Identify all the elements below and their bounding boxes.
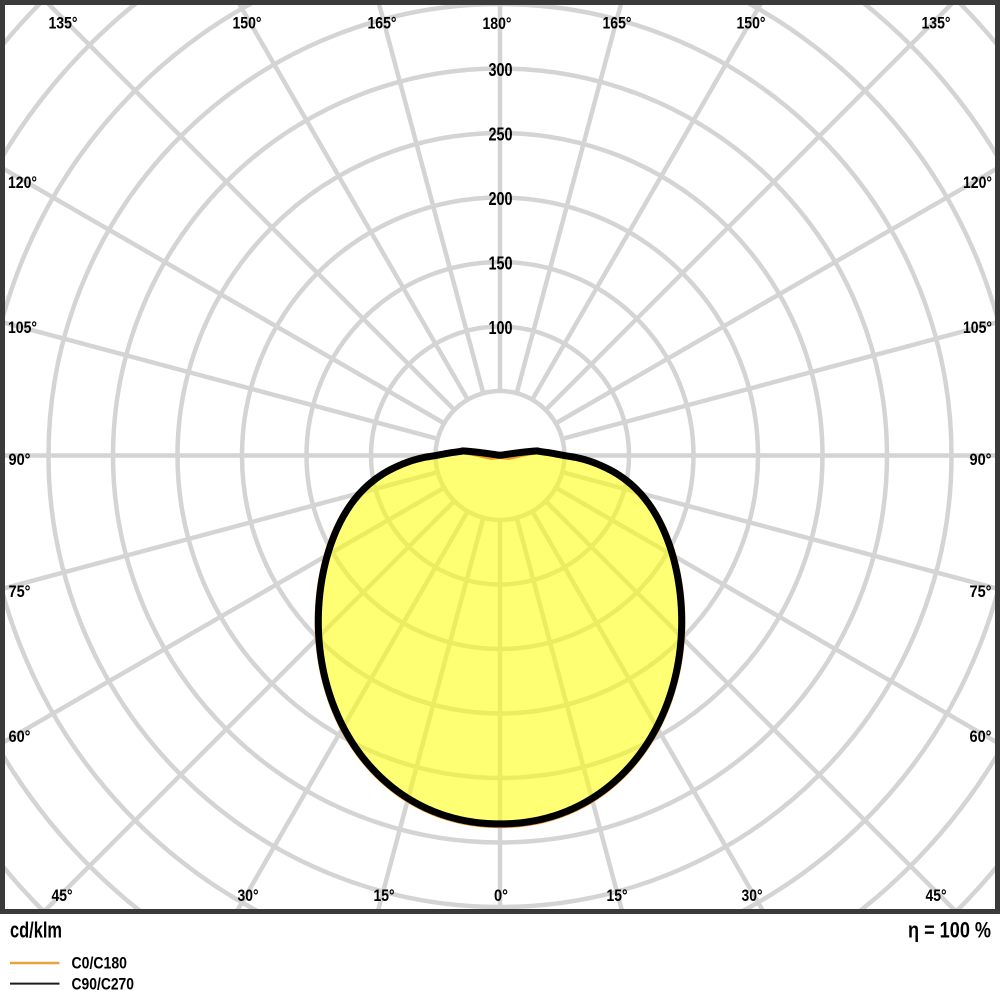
svg-text:45°: 45° bbox=[926, 887, 947, 905]
svg-text:150°: 150° bbox=[737, 15, 766, 33]
svg-text:15°: 15° bbox=[607, 887, 628, 905]
svg-text:300: 300 bbox=[489, 59, 513, 80]
svg-text:η = 100 %: η = 100 % bbox=[908, 918, 991, 943]
svg-text:120°: 120° bbox=[963, 174, 992, 192]
svg-text:C0/C180: C0/C180 bbox=[72, 954, 128, 972]
svg-text:150°: 150° bbox=[233, 15, 262, 33]
svg-text:60°: 60° bbox=[9, 728, 31, 746]
svg-text:30°: 30° bbox=[238, 887, 259, 905]
svg-text:165°: 165° bbox=[368, 15, 397, 33]
svg-text:135°: 135° bbox=[922, 15, 951, 33]
svg-text:30°: 30° bbox=[742, 887, 763, 905]
svg-text:60°: 60° bbox=[970, 728, 992, 746]
svg-text:180°: 180° bbox=[483, 15, 512, 33]
svg-text:cd/klm: cd/klm bbox=[10, 918, 62, 943]
svg-text:135°: 135° bbox=[49, 15, 78, 33]
svg-text:200: 200 bbox=[489, 188, 513, 209]
svg-text:C90/C270: C90/C270 bbox=[72, 976, 135, 994]
svg-text:250: 250 bbox=[489, 123, 513, 144]
svg-text:15°: 15° bbox=[374, 887, 395, 905]
svg-text:105°: 105° bbox=[8, 319, 37, 337]
svg-text:45°: 45° bbox=[52, 887, 73, 905]
svg-text:90°: 90° bbox=[9, 451, 31, 469]
svg-text:0°: 0° bbox=[494, 887, 508, 905]
svg-text:120°: 120° bbox=[8, 174, 37, 192]
svg-text:150: 150 bbox=[489, 252, 513, 273]
svg-text:75°: 75° bbox=[970, 583, 992, 601]
svg-text:90°: 90° bbox=[970, 451, 992, 469]
svg-text:165°: 165° bbox=[603, 15, 632, 33]
svg-text:100: 100 bbox=[489, 317, 513, 338]
svg-text:75°: 75° bbox=[9, 583, 31, 601]
svg-text:105°: 105° bbox=[963, 319, 992, 337]
